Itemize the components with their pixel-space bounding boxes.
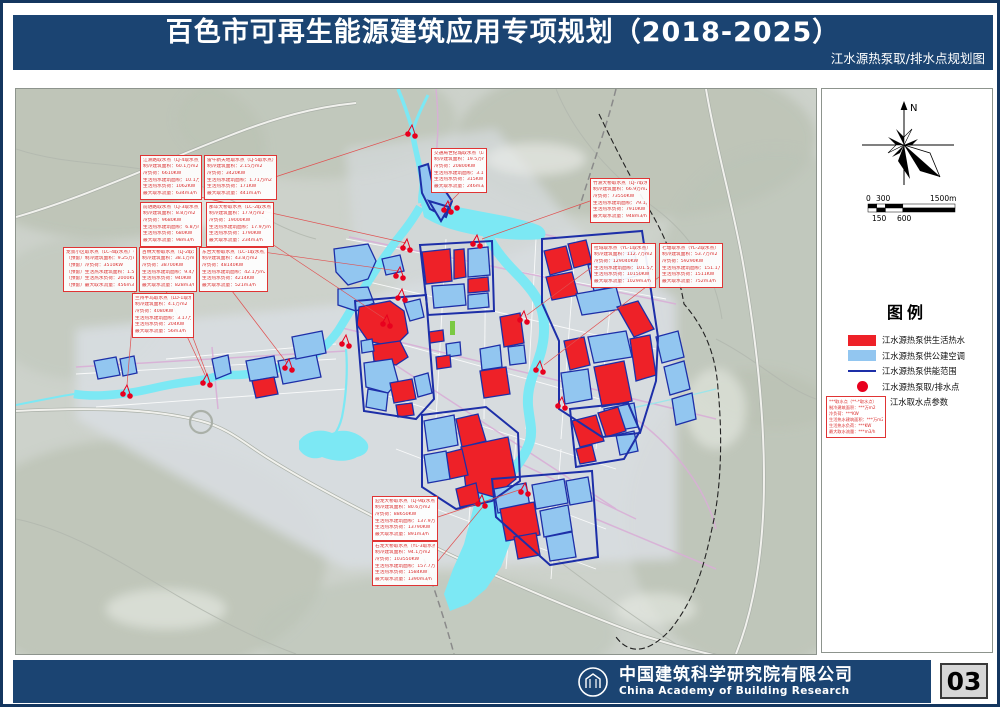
annotation-title: 兰州半岛取水点（LD-1取水点） (135, 296, 191, 303)
annotation-line: 最大取水流量：891m3/h (375, 532, 435, 539)
annotation-line: 最大取水流量：948m3/h (593, 214, 647, 221)
annotation-line: 冷负荷：3420KW (207, 171, 274, 178)
annotation-line: 生活热水建筑面积：137.9万m2 (375, 519, 435, 526)
annotation-line: 生活热水建筑面积：1.71万m2 (207, 178, 274, 185)
annotation-line: 生活热水负荷：13790KW (375, 525, 435, 532)
intake-point-dot[interactable] (402, 297, 408, 303)
annotation-line: 生活热水负荷：4214KW (202, 276, 265, 283)
annotation-line: 生活热水负荷：1062KW (143, 184, 199, 191)
intake-point-dot[interactable] (482, 503, 488, 509)
annotation-line: 生活热水负荷：1511KW (662, 272, 720, 279)
annotation-line: （预留）制冷建筑面积：9.25万m2 (66, 256, 134, 263)
intake-point-dot[interactable] (395, 295, 401, 301)
sample-annotation-box: ***取水点（**-*取水点）制冷建筑面积：***万m2冷负荷：***KW生活热… (826, 396, 886, 438)
annotation-line: 最大取水流量：441m3/h (207, 191, 274, 198)
annotation-line: 制冷建筑面积：8.8万m2 (143, 211, 199, 218)
intake-point-dot[interactable] (470, 241, 476, 247)
intake-point-dot[interactable] (282, 365, 288, 371)
annotation-title: 石龙大桥取水点（YL-3取水点） (375, 544, 435, 551)
intake-point-dot[interactable] (127, 393, 133, 399)
annotation-line: 最大取水流量：234m3/h (209, 238, 271, 245)
annotation-line: 冷负荷：129040KW (594, 259, 653, 266)
intake-point-dot[interactable] (393, 273, 399, 279)
intake-point-dot[interactable] (380, 321, 386, 327)
annotation-line: 冷负荷：103550KW (375, 557, 435, 564)
annotation-line: 制冷建筑面积：60.1万m2 (143, 164, 199, 171)
cabr-logo-icon (577, 666, 609, 698)
north-label: N (910, 103, 917, 114)
sample-line: 最大取水流量：***m3/h (829, 429, 883, 435)
annotation-line: 生活热水负荷：10150KW (594, 272, 653, 279)
annotation-line: 冷负荷：20800KW (434, 164, 484, 171)
intake-point-dot[interactable] (346, 343, 352, 349)
intake-point-dot[interactable] (524, 319, 530, 325)
annotation-line: 冷负荷：59290KW (662, 259, 720, 266)
annotation-line: 生活热水建筑面积：17.9万m2 (209, 225, 271, 232)
annotation-line: 制冷建筑面积：38.1万m2 (142, 256, 194, 263)
intake-point-dot[interactable] (448, 209, 454, 215)
annotation-line: 生活热水负荷：1790KW (209, 231, 271, 238)
line-swatch-icon (848, 366, 876, 377)
legend-label: 江水源热泵取/排水点 (882, 381, 959, 393)
legend-label: 江水源热泵供生活热水 (882, 334, 965, 346)
intake-point-dot[interactable] (454, 205, 460, 211)
annotation-title: 七塘取水点（YL-2取水点） (662, 246, 720, 253)
annotation-title: 那毕大桥取水点（LC-2取水点） (209, 205, 271, 212)
legend-item: 江水源热泵供生活热水 (848, 334, 988, 346)
annotation-line: 生活热水负荷：171KW (207, 184, 274, 191)
circle-swatch-icon (848, 381, 876, 392)
annotation-line: 制冷建筑面积：17.9万m2 (209, 211, 271, 218)
intake-point-dot[interactable] (555, 403, 561, 409)
annotation-title: 百林大桥取水点（LJ-2取水点） (142, 250, 194, 257)
annotation-title: 前进路取水点（LJ-3取水点） (143, 205, 199, 212)
intake-point-dot[interactable] (533, 367, 539, 373)
sample-line: 生活热水建筑面积：***万m2 (829, 417, 883, 423)
annotation-line: 最大取水流量：752m3/h (662, 279, 720, 286)
org-name-cn: 中国建筑科学研究院有限公司 (619, 666, 853, 685)
intake-point-dot[interactable] (475, 501, 481, 507)
annotation-line: 制冷建筑面积：53.7万m2 (662, 252, 720, 259)
intake-point-dot[interactable] (412, 133, 418, 139)
annotation-line: 最大取水流量：98m3/h (143, 238, 199, 245)
intake-point-dot[interactable] (339, 341, 345, 347)
svg-text:150: 150 (872, 214, 887, 223)
annotation-line: （预留）生活热水建筑面积：1.5万m2 (66, 270, 134, 277)
annotation-line: 最大取水流量：634m3/h (143, 191, 199, 198)
svg-text:0: 0 (866, 194, 871, 203)
annotation-line: 冷负荷：4080KW (135, 309, 191, 316)
intake-annotation-box: 兰州半岛取水点（LD-1取水点）制冷建筑面积：4.1万m2冷负荷：4080KW生… (132, 293, 194, 338)
annotation-title: 拉域取水点（YL-1取水点） (594, 246, 653, 253)
annotation-line: 生活热水建筑面积：151.1万m2 (662, 266, 720, 273)
legend-item: 江水源热泵取/排水点 (848, 381, 988, 393)
red-swatch-icon (848, 335, 876, 346)
annotation-line: 生活热水负荷：680KW (143, 231, 199, 238)
intake-point-dot[interactable] (517, 317, 523, 323)
intake-point-dot[interactable] (289, 367, 295, 373)
org-name-block: 中国建筑科学研究院有限公司 China Academy of Building … (619, 666, 853, 697)
intake-point-dot[interactable] (407, 247, 413, 253)
annotation-line: 制冷建筑面积：66.9万m2 (593, 187, 647, 194)
sample-line: 制冷建筑面积：***万m2 (829, 405, 883, 411)
org-name-en: China Academy of Building Research (619, 685, 853, 697)
annotation-line: 制冷建筑面积：43.8万m2 (202, 256, 265, 263)
intake-point-dot[interactable] (400, 245, 406, 251)
plan-sheet: 百色市可再生能源建筑应用专项规划（2018-2025） 江水源热泵取/排水点规划… (0, 0, 1000, 707)
legend-label: 江水源热泵供能范围 (882, 365, 957, 377)
annotation-line: 生活热水负荷：204KW (135, 322, 191, 329)
annotation-line: （预留）最大取水流量：456m3/h (66, 283, 134, 290)
legend-label: 江水源热泵供公建空调 (882, 350, 965, 362)
annotation-line: 最大取水流量：828m3/h (142, 283, 194, 290)
svg-text:300: 300 (876, 194, 891, 203)
intake-annotation-box: 拉域取水点（YL-1取水点）制冷建筑面积：112.7万m2冷负荷：129040K… (591, 243, 656, 288)
intake-point-dot[interactable] (207, 382, 213, 388)
annotation-title: 东合大桥取水点（LC-1取水点） (202, 250, 265, 257)
intake-point-dot[interactable] (120, 391, 126, 397)
intake-point-dot[interactable] (525, 491, 531, 497)
annotation-title: 迎龙大桥取水点（LJ-9取水点） (375, 499, 435, 506)
intake-annotation-box: 龙景小区取水点（LC-4取水点）（预留）（预留）制冷建筑面积：9.25万m2（预… (63, 247, 137, 292)
intake-point-dot[interactable] (562, 405, 568, 411)
svg-text:600: 600 (897, 214, 912, 223)
annotation-line: （预留）冷负荷：3510KW (66, 263, 134, 270)
annotation-line: 制冷建筑面积：80.6万m2 (375, 505, 435, 512)
annotation-line: 生活热水建筑面积：157.7万m2 (375, 564, 435, 571)
annotation-title: 竹洲大桥取水点（LJ-7取水点） (593, 181, 647, 188)
legend-title: 图例 (822, 299, 992, 323)
annotation-title: 江洲路取水点（LJ-4取水点） (143, 158, 199, 165)
intake-annotation-box: 七塘取水点（YL-2取水点）制冷建筑面积：53.7万m2冷负荷：59290KW生… (659, 243, 723, 288)
annotation-line: 最大取水流量：246m3/h (434, 184, 484, 191)
svg-text:1500m: 1500m (930, 194, 956, 203)
map-subtitle: 江水源热泵取/排水点规划图 (831, 48, 993, 67)
legend-list: 江水源热泵供生活热水江水源热泵供公建空调江水源热泵供能范围江水源热泵取/排水点*… (848, 334, 988, 438)
annotation-line: 冷负荷：6610KW (143, 171, 199, 178)
annotation-line: 制冷建筑面积：94.1万m2 (375, 550, 435, 557)
page-number: 03 (940, 663, 988, 699)
intake-annotation-box: 百林大桥取水点（LJ-2取水点）制冷建筑面积：38.1万m2冷负荷：38700K… (139, 247, 197, 292)
map-panel[interactable]: 江洲路取水点（LJ-4取水点）制冷建筑面积：60.1万m2冷负荷：6610KW生… (15, 88, 817, 655)
intake-point-dot[interactable] (387, 323, 393, 329)
annotation-line: 制冷建筑面积：19.5万m2 (434, 157, 484, 164)
intake-annotation-box: 竹洲大桥取水点（LJ-7取水点）制冷建筑面积：66.9万m2冷负荷：73550K… (590, 178, 650, 223)
header-bar: 百色市可再生能源建筑应用专项规划（2018-2025） 江水源热泵取/排水点规划… (13, 15, 993, 70)
intake-point-dot[interactable] (518, 489, 524, 495)
legend-label: 江水取水点参数 (890, 396, 948, 408)
blue-swatch-icon (848, 350, 876, 361)
side-panel: N 0 300 1500m 150 600 图例 江水源热泵供生活热水江水源热泵… (821, 88, 993, 653)
annotation-line: 生活热水建筑面积：79.1万m2 (593, 201, 647, 208)
footer-bar: 中国建筑科学研究院有限公司 China Academy of Building … (13, 660, 931, 703)
sample-line: ***取水点（**-*取水点） (829, 399, 883, 405)
annotation-line: 制冷建筑面积：4.1万m2 (135, 302, 191, 309)
intake-point-dot[interactable] (405, 131, 411, 137)
annotation-line: 生活热水建筑面积：3.15万m2 (434, 171, 484, 178)
intake-annotation-box: 江洲路取水点（LJ-4取水点）制冷建筑面积：60.1万m2冷负荷：6610KW生… (140, 155, 202, 200)
intake-annotation-box: 雷午新天地取水点（LJ-5取水点）制冷建筑面积：2.15万m2冷负荷：3420K… (204, 155, 277, 200)
annotation-line: 最大取水流量：1390m3/h (375, 577, 435, 584)
annotation-line: 生活热水负荷：1584KW (375, 570, 435, 577)
legend-item: 江水源热泵供能范围 (848, 365, 988, 377)
annotation-line: 生活热水负荷：940KW (142, 276, 194, 283)
annotation-line: 冷负荷：88650KW (375, 512, 435, 519)
intake-annotation-box: 东合大桥取水点（LC-1取水点）制冷建筑面积：43.8万m2冷负荷：48140K… (199, 247, 268, 292)
annotation-line: 最大取水流量：521m3/h (202, 283, 265, 290)
annotation-line: 制冷建筑面积：112.7万m2 (594, 252, 653, 259)
annotation-line: 冷负荷：73550KW (593, 194, 647, 201)
annotation-line: 生活热水建筑面积：6.8万m2 (143, 225, 199, 232)
page-title: 百色市可再生能源建筑应用专项规划（2018-2025） (13, 18, 993, 48)
annotation-line: 冷负荷：9680KW (143, 218, 199, 225)
annotation-line: 冷负荷：19000KW (209, 218, 271, 225)
annotation-line: （预留）生活热水负荷：2000KW (66, 276, 134, 283)
legend-item: 江水源热泵供公建空调 (848, 350, 988, 362)
annotation-line: 制冷建筑面积：2.15万m2 (207, 164, 274, 171)
annotation-line: 生活热水建筑面积：42.1万m2 (202, 270, 265, 277)
intake-point-dot[interactable] (477, 243, 483, 249)
intake-point-dot[interactable] (441, 207, 447, 213)
intake-point-dot[interactable] (540, 369, 546, 375)
intake-point-dot[interactable] (200, 380, 206, 386)
annotation-line: 生活热水建筑面积：9.4万m2 (142, 270, 194, 277)
legend-item-sample: ***取水点（**-*取水点）制冷建筑面积：***万m2冷负荷：***KW生活热… (826, 396, 988, 438)
intake-annotation-box: 迎龙大桥取水点（LJ-9取水点）制冷建筑面积：80.6万m2冷负荷：88650K… (372, 496, 438, 541)
annotation-line: 最大取水流量：1029m3/h (594, 279, 653, 286)
intake-point-dot[interactable] (400, 275, 406, 281)
annotation-line: 冷负荷：48140KW (202, 263, 265, 270)
annotation-line: 生活热水建筑面积：10.1万m2 (143, 178, 199, 185)
intake-annotation-box: 石龙大桥取水点（YL-3取水点）制冷建筑面积：94.1万m2冷负荷：103550… (372, 541, 438, 586)
annotation-line: 冷负荷：38700KW (142, 263, 194, 270)
intake-annotation-box: 前进路取水点（LJ-3取水点）制冷建筑面积：8.8万m2冷负荷：9680KW生活… (140, 202, 202, 247)
annotation-line: 生活热水建筑面积：3.17万m2 (135, 316, 191, 323)
intake-annotation-box: 交通局世纪城取水点（LC-3取水点）制冷建筑面积：19.5万m2冷负荷：2080… (431, 148, 487, 193)
annotation-line: 生活热水建筑面积：101.5万m2 (594, 266, 653, 273)
annotation-title: 雷午新天地取水点（LJ-5取水点） (207, 158, 274, 165)
annotation-line: 生活热水负荷：315KW (434, 177, 484, 184)
annotation-line: 最大取水流量：56m3/h (135, 329, 191, 336)
annotation-title: 龙景小区取水点（LC-4取水点）（预留） (66, 250, 134, 257)
intake-annotation-box: 那毕大桥取水点（LC-2取水点）制冷建筑面积：17.9万m2冷负荷：19000K… (206, 202, 274, 247)
scale-bar: 0 300 1500m 150 600 (864, 193, 964, 227)
annotation-title: 交通局世纪城取水点（LC-3取水点） (434, 151, 484, 158)
north-arrow: N (848, 95, 966, 191)
annotation-line: 生活热水负荷：7910KW (593, 207, 647, 214)
